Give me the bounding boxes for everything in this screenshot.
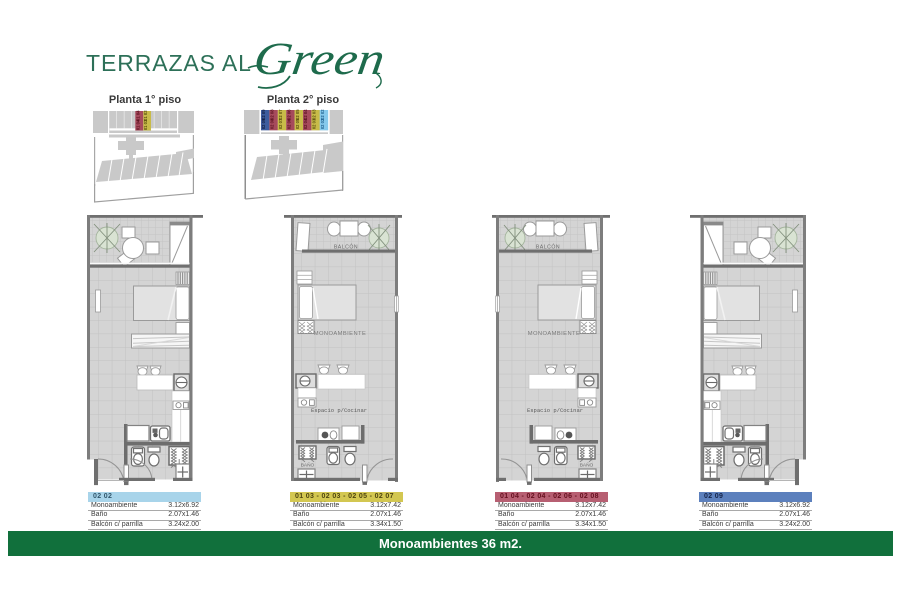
svg-text:BAÑO: BAÑO: [580, 462, 594, 469]
svg-text:02 05: 02 05: [295, 118, 300, 129]
svg-text:02 05: 02 05: [295, 109, 300, 120]
svg-text:02 02: 02 02: [320, 109, 325, 120]
svg-text:02 06: 02 06: [286, 118, 291, 129]
svg-text:BALCÓN: BALCÓN: [334, 244, 358, 251]
svg-text:02 04: 02 04: [303, 109, 308, 120]
svg-text:Espacio p/Cocinar: Espacio p/Cocinar: [311, 407, 367, 414]
svg-text:02 03: 02 03: [312, 109, 317, 120]
svg-text:02 09: 02 09: [261, 109, 266, 120]
svg-text:BALCÓN: BALCÓN: [536, 244, 560, 251]
svg-text:Espacio p/Cocinar: Espacio p/Cocinar: [527, 407, 583, 414]
svg-text:02 03: 02 03: [312, 118, 317, 129]
svg-text:01 03: 01 03: [143, 110, 148, 121]
svg-text:02 04: 02 04: [303, 118, 308, 129]
svg-text:02 07: 02 07: [278, 109, 283, 120]
svg-text:02 07: 02 07: [278, 118, 283, 129]
svg-text:02 08: 02 08: [270, 109, 275, 120]
svg-text:01 03: 01 03: [143, 119, 148, 130]
svg-text:MONOAMBIENTE: MONOAMBIENTE: [314, 331, 366, 337]
svg-text:01 04: 01 04: [135, 119, 140, 130]
svg-text:BAÑO: BAÑO: [301, 462, 315, 469]
svg-text:02 06: 02 06: [286, 109, 291, 120]
svg-text:01 04: 01 04: [135, 110, 140, 121]
svg-text:02 02: 02 02: [320, 118, 325, 129]
svg-text:MONOAMBIENTE: MONOAMBIENTE: [528, 331, 580, 337]
svg-text:02 09: 02 09: [261, 118, 266, 129]
svg-text:02 08: 02 08: [270, 118, 275, 129]
